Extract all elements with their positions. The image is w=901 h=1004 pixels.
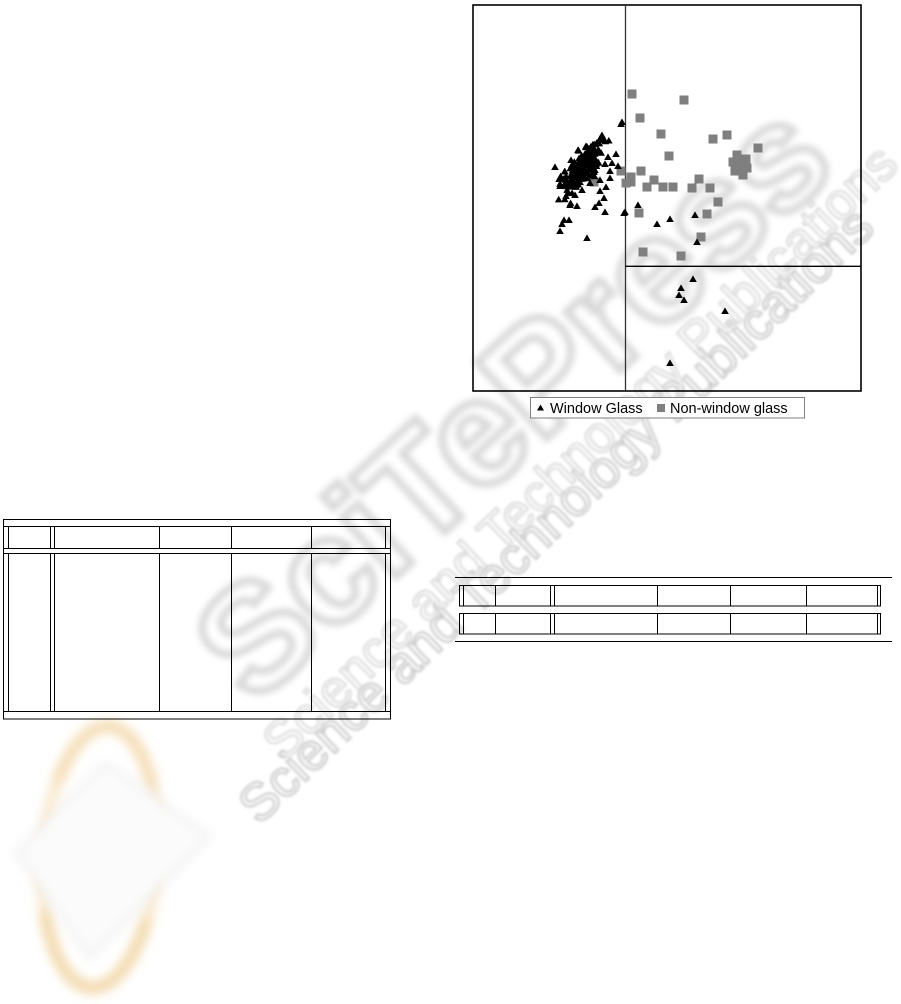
svg-text:Window Glass: Window Glass bbox=[550, 401, 643, 417]
svg-text:Non-window glass: Non-window glass bbox=[670, 401, 788, 417]
